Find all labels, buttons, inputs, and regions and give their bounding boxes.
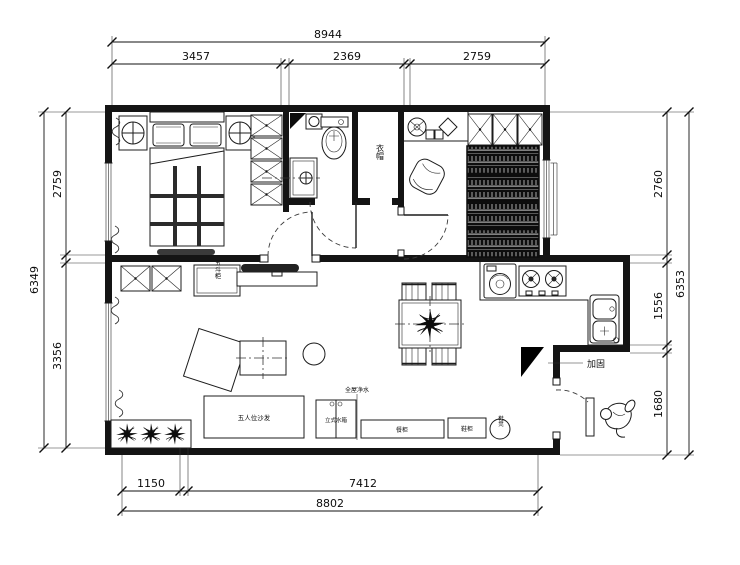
whole-house-note-label: 全屋净水 <box>345 386 369 394</box>
curtain-icon <box>115 390 123 417</box>
kitchen-sink <box>590 295 619 343</box>
dining-area <box>395 283 465 365</box>
nightstand-right <box>226 116 254 150</box>
armchair <box>406 156 447 197</box>
dim-top-seg2: 2369 <box>333 50 361 63</box>
dim-top-seg3: 2759 <box>463 50 491 63</box>
water-tank-cabinet: 立式水箱 <box>316 400 356 438</box>
door-bedroom2 <box>404 215 448 259</box>
window-living-left <box>105 303 113 421</box>
storage-box <box>121 266 181 291</box>
shoe-cabinet: 鞋柜 <box>448 418 486 438</box>
shoe-cabinet-label: 鞋柜 <box>461 425 473 433</box>
dining-chair <box>432 348 456 365</box>
bedroom-2 <box>404 112 542 257</box>
wardrobe-bedroom2 <box>468 114 542 145</box>
bedroom-1 <box>111 112 282 255</box>
dining-chair <box>402 283 426 300</box>
sofa-label: 五人位沙发 <box>238 413 271 422</box>
dining-chair <box>402 348 426 365</box>
gas-stove <box>519 266 566 296</box>
dim-right-seg2: 1556 <box>652 292 665 320</box>
dim-left-seg1: 2759 <box>51 170 64 198</box>
dim-left-overall: 6349 <box>28 266 41 294</box>
sofa: 五人位沙发 <box>204 396 304 438</box>
shoe-stool: 鞋凳 <box>490 414 510 439</box>
sideboard: 餐柜 <box>361 420 444 438</box>
tatami-bed <box>467 146 539 257</box>
toilet <box>321 117 348 159</box>
dining-table <box>395 296 465 352</box>
vanity-sink <box>290 113 322 129</box>
dim-top-seg1: 3457 <box>182 50 210 63</box>
bedside-rug <box>157 249 215 255</box>
dim-right-seg1: 2760 <box>652 170 665 198</box>
double-bed <box>150 112 224 246</box>
closet-room: 衣帽 <box>376 143 385 161</box>
wardrobe-bedroom1 <box>251 115 282 205</box>
dim-bottom-seg2: 7412 <box>349 477 377 490</box>
coffee-table <box>236 337 290 379</box>
window-bedroom1-left <box>105 163 113 241</box>
dim-left-seg2: 3356 <box>51 342 64 370</box>
desk-chair <box>408 118 426 136</box>
dim-right-seg3: 1680 <box>652 390 665 418</box>
tv-console <box>237 264 317 286</box>
dimension-left: 6349 2759 3356 <box>28 108 105 453</box>
floor-plan-canvas: 衣帽 <box>0 0 740 565</box>
entry-door <box>556 390 594 436</box>
drawer-cabinet-label: 五斗柜 <box>213 259 221 280</box>
door-bathroom <box>310 202 356 248</box>
bottom-cabinet-row: 立式水箱 全屋净水 餐柜 鞋柜 鞋凳 <box>316 386 510 440</box>
living-room: 五斗柜 五人位沙发 <box>111 259 325 448</box>
shoe-stool-label: 鞋凳 <box>497 414 504 428</box>
window-bedroom2-right <box>543 160 558 238</box>
area-rug <box>183 328 246 391</box>
dimension-bottom: 1150 7412 8802 <box>118 448 543 516</box>
person-figure <box>601 398 638 437</box>
dim-right-overall: 6353 <box>674 270 687 298</box>
round-stool <box>303 343 325 365</box>
desk-item <box>426 130 434 139</box>
tv-icon <box>241 264 299 272</box>
water-tank-label: 立式水箱 <box>325 416 348 424</box>
dim-bottom-overall: 8802 <box>316 497 344 510</box>
closet-label: 衣帽 <box>376 143 385 161</box>
door-bedroom1 <box>268 212 312 256</box>
desk-item <box>435 130 443 139</box>
washing-machine <box>484 264 516 298</box>
planter-box <box>111 420 191 448</box>
dimension-top: 8944 3457 2369 2759 <box>108 28 550 105</box>
dim-bottom-seg1: 1150 <box>137 477 165 490</box>
sideboard-label: 餐柜 <box>396 426 408 434</box>
reinforce-triangle-icon <box>521 347 544 377</box>
nightstand-left <box>119 116 147 150</box>
dining-chair <box>432 283 456 300</box>
reinforce-label: 加固 <box>587 359 605 370</box>
drawer-cabinet: 五斗柜 <box>194 259 240 296</box>
dim-top-overall: 8944 <box>314 28 342 41</box>
kitchen: 加固 <box>480 262 623 377</box>
